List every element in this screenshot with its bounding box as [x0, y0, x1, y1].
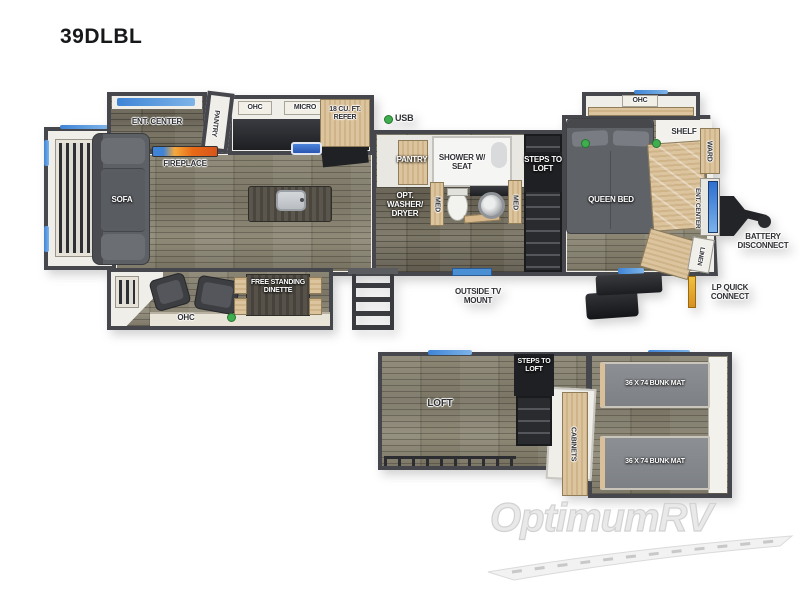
bunk-bottom-label: 36 X 74 BUNK MAT: [602, 458, 708, 466]
cabinets-label: CABINETS: [569, 414, 577, 474]
bunk-top-label: 36 X 74 BUNK MAT: [602, 380, 708, 388]
loft-label: LOFT: [414, 398, 466, 409]
model-title: 39DLBL: [60, 26, 142, 47]
rv-floorplan-39dlbl: 39DLBL SOFA ENT. CENTER PANTRY FIREPLACE: [0, 0, 800, 600]
loft-steps-treads: [516, 396, 552, 446]
loft-window-accent: [428, 350, 472, 355]
loft-railing: [384, 456, 516, 466]
loft-steps-label: STEPS TO LOFT: [514, 358, 554, 373]
bunk-room-wall: [708, 357, 727, 493]
watermark-logo: OptimumRV: [490, 498, 712, 538]
